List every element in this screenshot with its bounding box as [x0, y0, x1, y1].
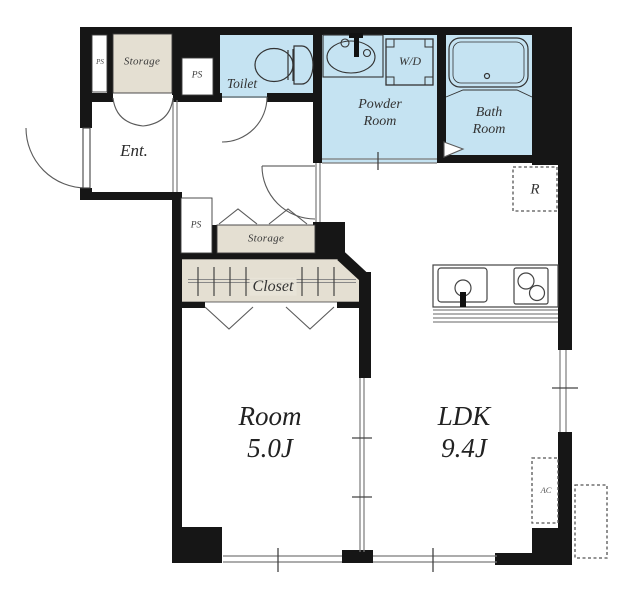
window-ticks	[278, 152, 578, 572]
floorplan-drawing	[0, 0, 625, 599]
closet-bifold2	[286, 307, 334, 329]
bath-room-label: Bath Room	[473, 104, 506, 138]
powder-room-label-line1: Powder	[358, 96, 402, 113]
ac-label: AC	[541, 486, 552, 496]
entrance-door-leaf	[83, 128, 90, 188]
outdoor-unit-box	[575, 485, 607, 558]
main-room-label: Room 5.0J	[239, 400, 302, 464]
kitchen-counter	[433, 265, 558, 322]
main-room-name: Room	[239, 400, 302, 432]
powder-room-label-line2: Room	[358, 113, 402, 130]
ldk-size: 9.4J	[438, 432, 491, 464]
washer-dryer-label: W/D	[399, 55, 421, 69]
powder-room-label: Powder Room	[358, 96, 402, 130]
ps-strip-label: PS	[96, 58, 104, 66]
ps-lower-label: PS	[191, 221, 202, 232]
ps-upper-label: PS	[192, 71, 203, 82]
room-fills	[181, 30, 537, 302]
closet-label: Closet	[250, 278, 297, 296]
main-room-size: 5.0J	[239, 432, 302, 464]
refrigerator-label: R	[530, 181, 539, 198]
toilet-label: Toilet	[227, 76, 257, 92]
bath-room-label-line1: Bath	[473, 104, 506, 121]
storage-upper-door-arcs	[113, 98, 173, 126]
ldk-door-arc	[262, 166, 315, 219]
ldk-name: LDK	[438, 400, 491, 432]
storage-lower-bifold	[219, 209, 257, 224]
bath-room-floor	[441, 30, 537, 159]
storage-lower-label: Storage	[248, 233, 284, 246]
closet-bifold	[205, 307, 253, 329]
bath-room-label-line2: Room	[473, 121, 506, 138]
entrance-door-arc	[26, 128, 86, 188]
entrance-label: Ent.	[120, 141, 148, 161]
toilet-door-arc	[222, 97, 267, 142]
storage-upper-label: Storage	[124, 56, 160, 69]
ldk-label: LDK 9.4J	[438, 400, 491, 464]
floorplan: PS Storage PS Toilet Powder Room W/D Bat…	[0, 0, 625, 599]
